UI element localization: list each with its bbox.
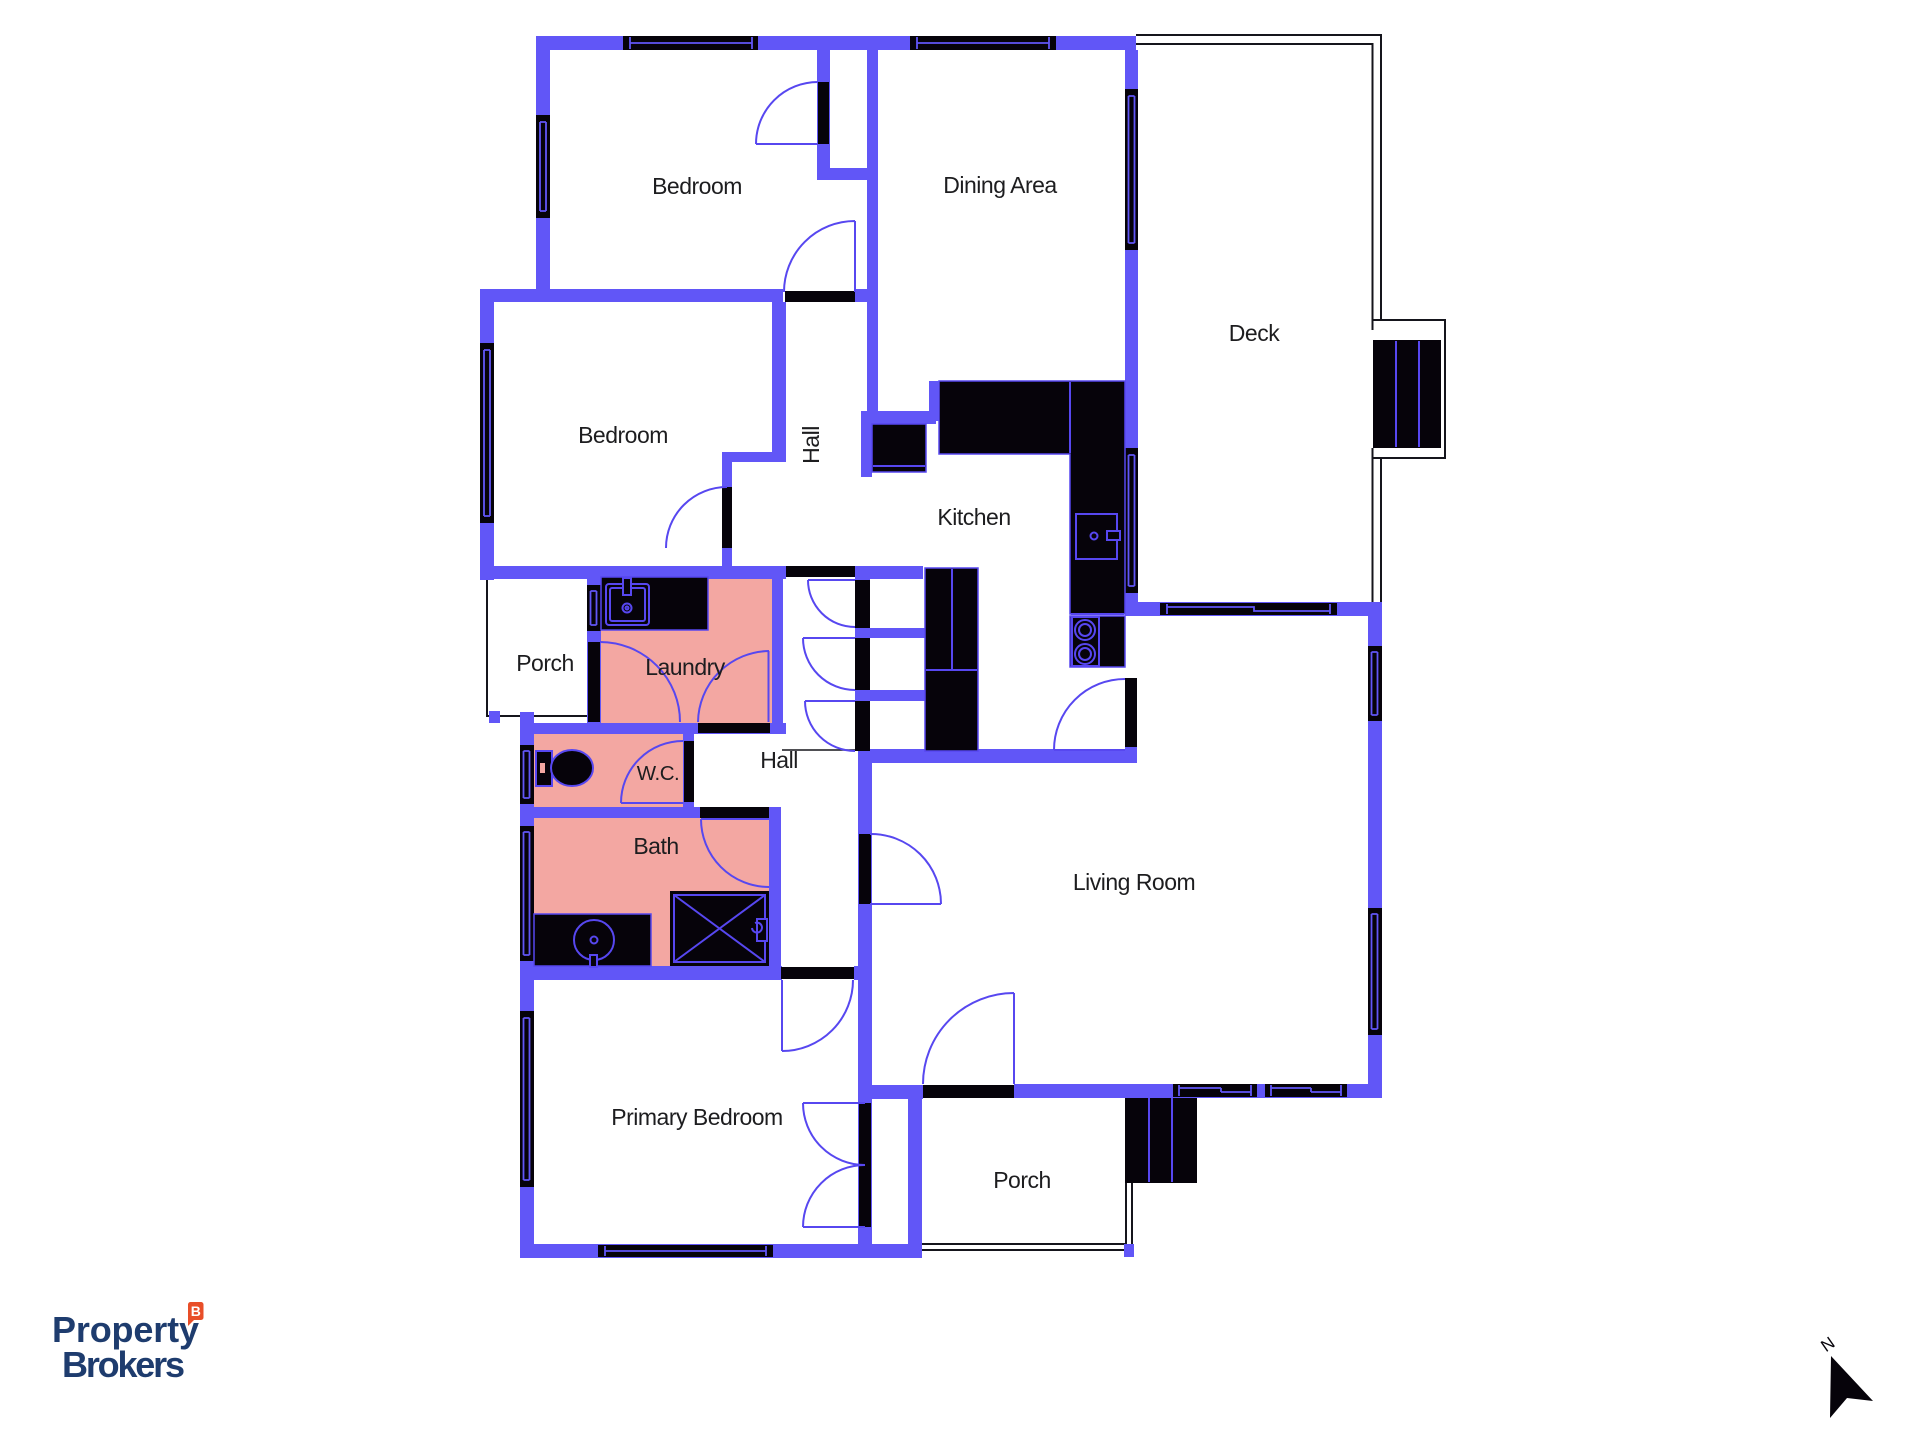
svg-text:Primary Bedroom: Primary Bedroom: [611, 1104, 782, 1130]
svg-text:Dining Area: Dining Area: [943, 172, 1057, 198]
svg-text:Bedroom: Bedroom: [652, 173, 742, 199]
svg-text:Kitchen: Kitchen: [937, 504, 1010, 530]
svg-text:W.C.: W.C.: [637, 762, 679, 785]
svg-text:Bedroom: Bedroom: [578, 422, 668, 448]
svg-text:Porch: Porch: [993, 1167, 1051, 1193]
svg-text:N: N: [1817, 1333, 1838, 1356]
svg-text:Deck: Deck: [1229, 320, 1280, 346]
svg-text:Living Room: Living Room: [1073, 869, 1195, 895]
svg-text:Brokers: Brokers: [62, 1344, 185, 1385]
svg-text:Laundry: Laundry: [645, 654, 726, 680]
svg-text:Hall: Hall: [798, 426, 824, 464]
svg-text:Porch: Porch: [516, 650, 574, 676]
svg-text:Bath: Bath: [633, 833, 678, 859]
svg-text:Hall: Hall: [760, 747, 798, 773]
svg-text:B: B: [191, 1303, 201, 1319]
